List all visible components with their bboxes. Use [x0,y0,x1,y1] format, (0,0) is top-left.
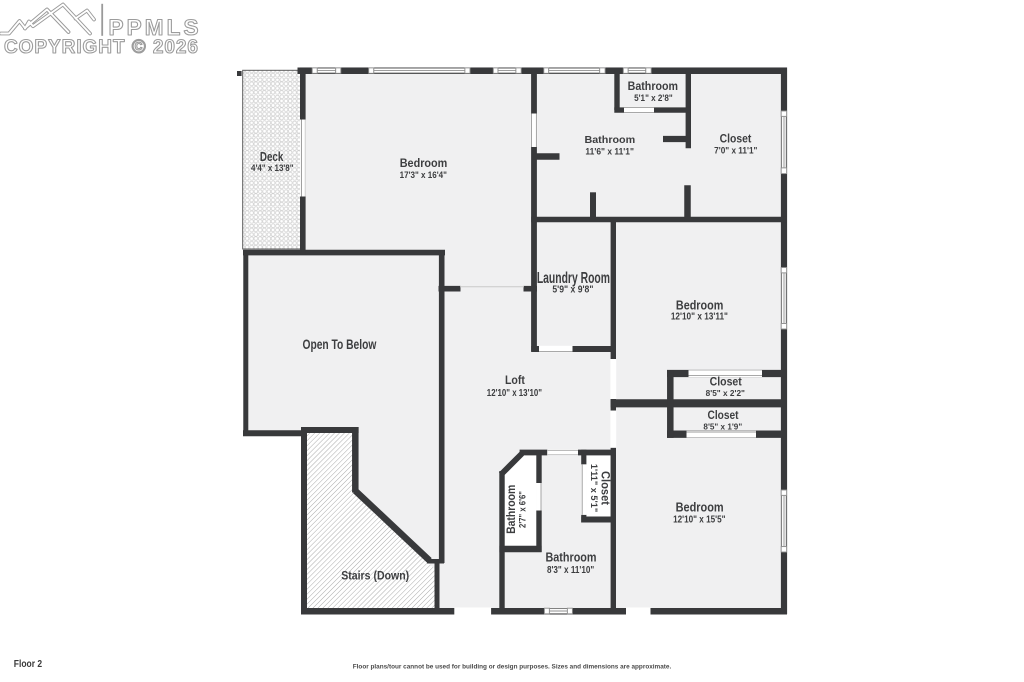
svg-text:Bedroom: Bedroom [676,501,724,515]
svg-text:Floor 2: Floor 2 [14,658,42,669]
svg-text:Closet: Closet [708,409,739,422]
svg-text:Bathroom: Bathroom [628,81,678,94]
svg-text:Open To Below: Open To Below [302,336,376,352]
svg-text:Closet: Closet [720,133,752,146]
svg-text:1'11" x 5'1": 1'11" x 5'1" [589,464,599,512]
svg-text:Loft: Loft [505,374,525,387]
svg-text:PPMLS: PPMLS [109,15,199,40]
svg-text:Closet: Closet [598,471,610,505]
svg-text:12'10" x 15'5": 12'10" x 15'5" [673,514,725,525]
svg-text:8'5" x 1'9": 8'5" x 1'9" [703,421,742,431]
svg-text:5'1" x 2'8": 5'1" x 2'8" [634,93,673,103]
svg-text:8'3" x 11'10": 8'3" x 11'10" [547,564,594,575]
svg-text:12'10" x 13'10": 12'10" x 13'10" [487,387,542,398]
svg-text:8'5" x 2'2": 8'5" x 2'2" [706,389,745,398]
svg-text:4'4" x 13'8": 4'4" x 13'8" [251,163,294,174]
svg-text:7'0" x 11'1": 7'0" x 11'1" [714,145,757,155]
svg-text:5'9" x 9'8": 5'9" x 9'8" [552,284,593,296]
svg-text:Bathroom: Bathroom [584,134,635,146]
svg-text:Closet: Closet [710,376,742,389]
svg-text:11'6" x 11'1": 11'6" x 11'1" [585,146,634,156]
svg-text:Floor plans/tour cannot be use: Floor plans/tour cannot be used for buil… [353,664,672,671]
svg-text:Stairs (Down): Stairs (Down) [341,570,409,583]
svg-text:COPYRIGHT © 2026: COPYRIGHT © 2026 [4,37,198,58]
svg-text:17'3" x 16'4": 17'3" x 16'4" [400,169,447,180]
svg-text:2'7" x 6'6": 2'7" x 6'6" [517,491,528,528]
svg-text:12'10" x 13'11": 12'10" x 13'11" [671,311,728,322]
svg-text:Bathroom: Bathroom [545,550,596,565]
